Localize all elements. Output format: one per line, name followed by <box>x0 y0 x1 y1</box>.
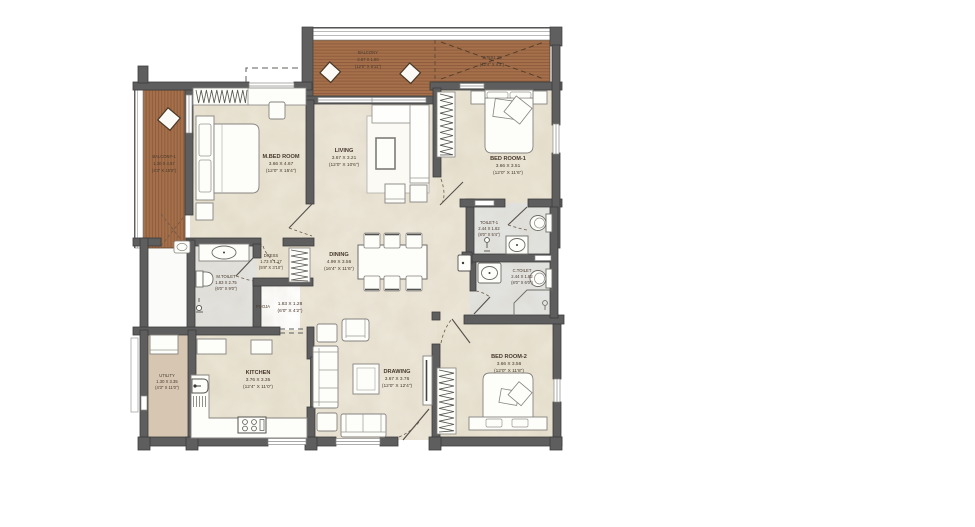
svg-text:(12'0" X 15'4"): (12'0" X 15'4") <box>266 168 297 174</box>
svg-text:3.67 X 1.80: 3.67 X 1.80 <box>357 57 379 62</box>
svg-text:3.67 X 3.21: 3.67 X 3.21 <box>332 155 357 161</box>
svg-text:BED ROOM-1: BED ROOM-1 <box>490 156 526 162</box>
svg-text:3.66 X 3.56: 3.66 X 3.56 <box>497 361 522 367</box>
svg-text:BALCONY-1: BALCONY-1 <box>152 154 176 159</box>
svg-text:3.66 X 4.67: 3.66 X 4.67 <box>269 161 294 167</box>
svg-text:1.30 X 4.57: 1.30 X 4.57 <box>153 161 175 166</box>
svg-text:(12'0" X 5'11"): (12'0" X 5'11") <box>355 64 382 69</box>
svg-text:(6'0" X 4'2"): (6'0" X 4'2") <box>278 308 303 314</box>
svg-text:BED ROOM-2: BED ROOM-2 <box>491 354 527 360</box>
svg-text:UTILITY: UTILITY <box>159 373 175 378</box>
svg-text:(8'0" X 6'0"): (8'0" X 6'0") <box>511 280 533 285</box>
svg-text:M.BED ROOM: M.BED ROOM <box>263 154 300 160</box>
svg-text:(12'4" X 11'0"): (12'4" X 11'0") <box>243 384 273 390</box>
svg-text:(4'3" X 11'0"): (4'3" X 11'0") <box>155 385 179 390</box>
svg-text:1.73 X 1.17: 1.73 X 1.17 <box>260 259 282 264</box>
svg-text:DRAWING: DRAWING <box>383 369 410 375</box>
svg-text:(12'4" X 4'3"): (12'4" X 4'3") <box>480 62 505 67</box>
svg-text:3.67 X 3.76: 3.67 X 3.76 <box>385 376 410 382</box>
svg-text:(12'0" X 10'6"): (12'0" X 10'6") <box>329 162 360 168</box>
svg-text:1.83 X 2.75: 1.83 X 2.75 <box>215 280 237 285</box>
svg-text:(5'8" X 3'10"): (5'8" X 3'10") <box>259 265 284 270</box>
svg-text:(8'0" X 5'4"): (8'0" X 5'4") <box>478 232 500 237</box>
svg-text:(4'3" X 15'0"): (4'3" X 15'0") <box>152 168 177 173</box>
svg-text:1.30 X 3.35: 1.30 X 3.35 <box>156 379 178 384</box>
svg-text:DINING: DINING <box>329 252 349 258</box>
svg-text:3.76 X 3.35: 3.76 X 3.35 <box>246 377 271 383</box>
svg-text:M.TOILET: M.TOILET <box>216 274 236 279</box>
svg-text:1.83 X 1.28: 1.83 X 1.28 <box>278 301 303 307</box>
svg-text:(12'0" X 12'4"): (12'0" X 12'4") <box>382 383 413 389</box>
svg-text:KITCHEN: KITCHEN <box>246 370 271 376</box>
svg-text:3.76X1.30: 3.76X1.30 <box>482 55 502 60</box>
svg-text:2.44 X 1.62: 2.44 X 1.62 <box>478 226 500 231</box>
svg-text:LIVING: LIVING <box>335 148 354 154</box>
svg-text:BALCONY: BALCONY <box>358 50 378 55</box>
svg-text:2.44 X 1.82: 2.44 X 1.82 <box>511 274 533 279</box>
svg-text:DRESS: DRESS <box>264 253 279 258</box>
svg-text:4.99 X 3.56: 4.99 X 3.56 <box>327 259 352 265</box>
svg-text:TOILET-1: TOILET-1 <box>480 220 499 225</box>
svg-text:C.TOILET: C.TOILET <box>513 268 532 273</box>
svg-text:3.66 X 3.51: 3.66 X 3.51 <box>496 163 521 169</box>
svg-text:(16'4" X 11'6"): (16'4" X 11'6") <box>324 266 354 272</box>
svg-text:(6'0" X 9'0"): (6'0" X 9'0") <box>215 286 237 291</box>
svg-text:(12'0" X 11'6"): (12'0" X 11'6") <box>493 170 523 176</box>
svg-text:POOJA: POOJA <box>256 304 270 309</box>
svg-text:(12'0" X 11'8"): (12'0" X 11'8") <box>494 368 524 374</box>
